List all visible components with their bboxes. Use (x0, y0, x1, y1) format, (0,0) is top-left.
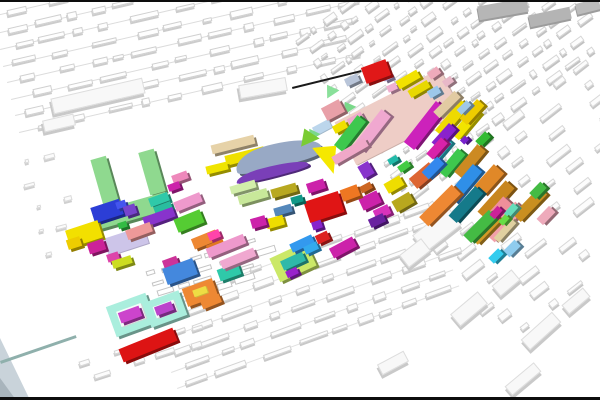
map-line (0, 335, 77, 364)
letterbox-bar (0, 0, 600, 2)
city-model-render (0, 0, 600, 400)
overlay-layer (0, 0, 600, 400)
map-line (292, 70, 361, 88)
